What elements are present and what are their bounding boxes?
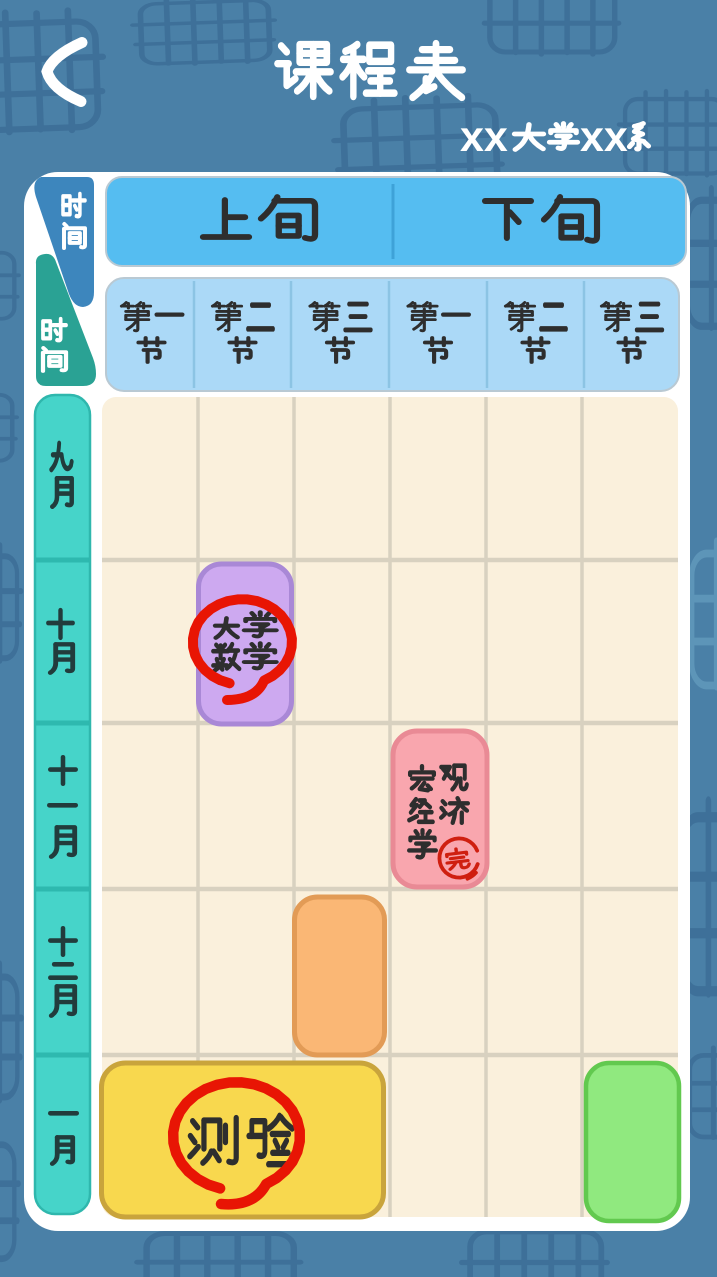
svg-text:xx: xx [580,113,628,161]
svg-text:xx: xx [460,113,508,161]
